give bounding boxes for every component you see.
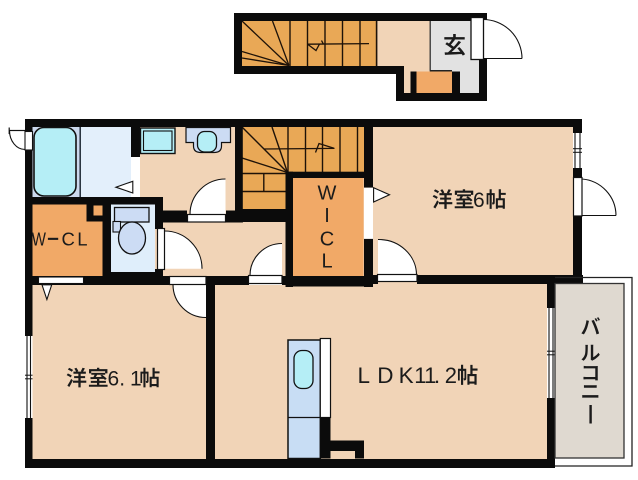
svg-text:C: C (320, 229, 334, 251)
svg-text:W: W (32, 229, 47, 250)
svg-text:6.1: 6.1 (108, 368, 142, 391)
svg-text:W: W (318, 183, 337, 205)
svg-text:C: C (62, 229, 75, 250)
svg-text:6: 6 (473, 189, 485, 212)
svg-text:L: L (321, 251, 332, 273)
svg-text:I: I (324, 205, 330, 227)
svg-text:11.2: 11.2 (414, 363, 457, 388)
svg-text:L: L (77, 229, 87, 250)
svg-text:LDK: LDK (358, 363, 414, 388)
